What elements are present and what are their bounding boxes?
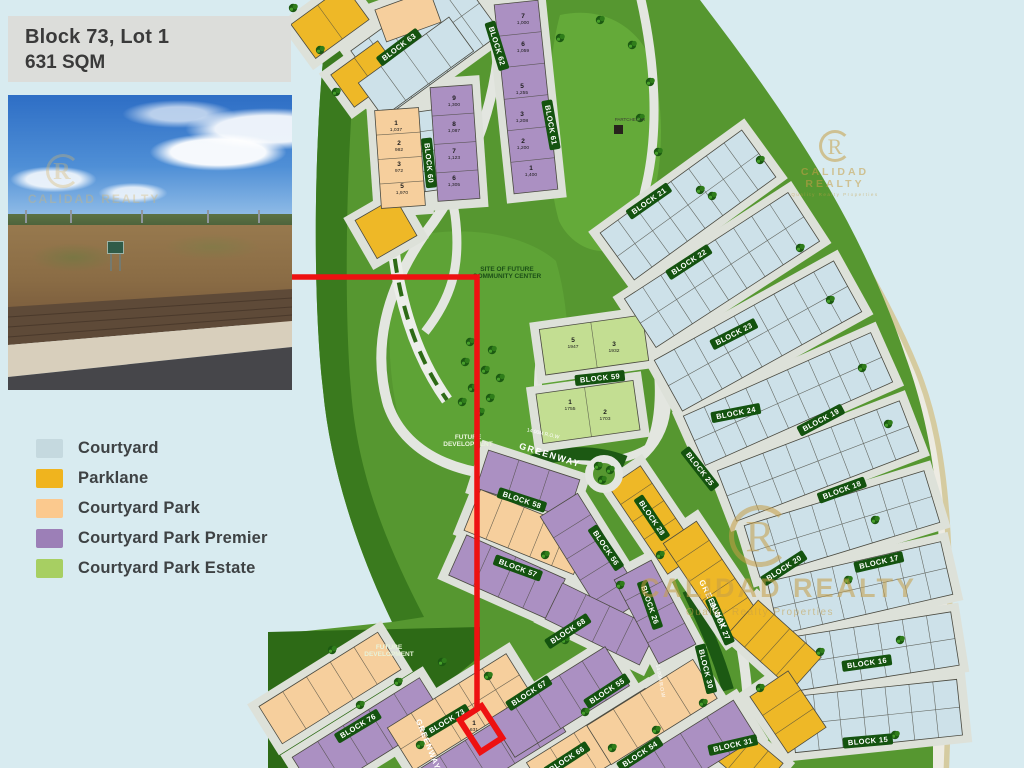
legend-swatch: [36, 559, 63, 578]
legend-label: Courtyard Park Premier: [78, 529, 268, 548]
info-card-area: 631 SQM: [25, 52, 291, 74]
legend-label: Courtyard: [78, 439, 159, 458]
highlight-leader-line: [290, 277, 477, 707]
watermark-logo: R: [46, 154, 80, 188]
highlight-lot-outline: [460, 706, 503, 752]
legend-item: Parklane: [36, 463, 268, 493]
legend-swatch: [36, 439, 63, 458]
legend-label: Parklane: [78, 469, 148, 488]
photo-foreground: [8, 95, 292, 390]
legend-item: Courtyard Park Premier: [36, 523, 268, 553]
photo-watermark: R CALIDAD REALTY: [28, 154, 160, 206]
legend-item: Courtyard: [36, 433, 268, 463]
info-card-title: Block 73, Lot 1: [25, 26, 291, 49]
info-card: Block 73, Lot 1 631 SQM: [8, 16, 291, 82]
legend-item: Courtyard Park Estate: [36, 553, 268, 583]
legend-swatch: [36, 529, 63, 548]
property-photo: R CALIDAD REALTY: [8, 95, 292, 390]
legend-item: Courtyard Park: [36, 493, 268, 523]
legend: CourtyardParklaneCourtyard ParkCourtyard…: [36, 433, 268, 583]
legend-label: Courtyard Park: [78, 499, 200, 518]
legend-label: Courtyard Park Estate: [78, 559, 256, 578]
site-plan-page: BLOCK 63BLOCK 62BLOCK 61BLOCK 60BLOCK 59…: [0, 0, 1024, 768]
legend-swatch: [36, 499, 63, 518]
legend-swatch: [36, 469, 63, 488]
